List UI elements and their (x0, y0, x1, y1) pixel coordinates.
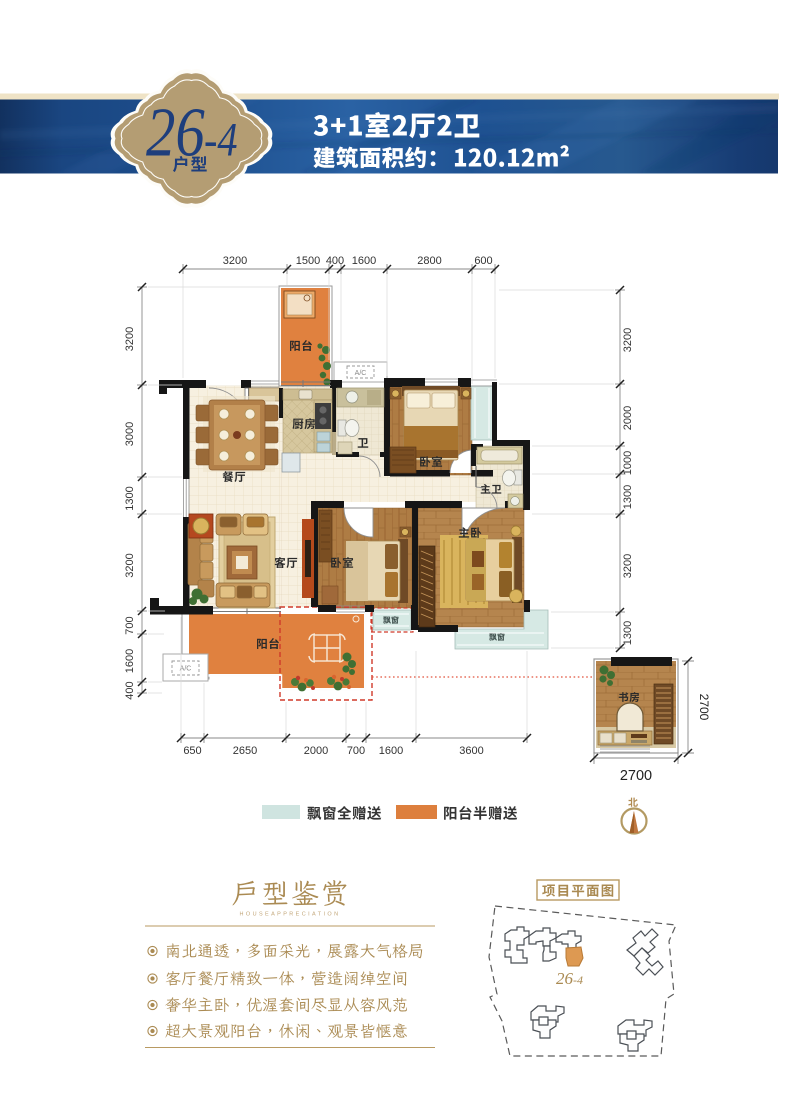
svg-text:1300: 1300 (622, 485, 634, 509)
svg-text:3200: 3200 (124, 327, 136, 351)
svg-text:3200: 3200 (622, 328, 634, 352)
svg-text:1600: 1600 (124, 649, 136, 673)
svg-text:1500: 1500 (296, 255, 320, 267)
svg-text:2700: 2700 (697, 694, 711, 721)
svg-text:A/C: A/C (355, 370, 367, 377)
svg-text:400: 400 (124, 681, 136, 699)
svg-text:1000: 1000 (622, 451, 634, 475)
svg-text:A/C: A/C (180, 666, 192, 673)
svg-text:3000: 3000 (124, 422, 136, 446)
svg-text:2000: 2000 (304, 745, 328, 757)
svg-text:HOUSEAPPRECIATION: HOUSEAPPRECIATION (240, 912, 341, 918)
svg-text:600: 600 (474, 255, 492, 267)
svg-text:700: 700 (347, 745, 365, 757)
svg-text:1300: 1300 (124, 486, 136, 510)
svg-text:26-4: 26-4 (556, 969, 583, 988)
svg-text:1300: 1300 (622, 621, 634, 645)
svg-text:650: 650 (183, 745, 201, 757)
svg-text:3200: 3200 (124, 553, 136, 577)
svg-text:1600: 1600 (379, 745, 403, 757)
svg-text:1600: 1600 (352, 255, 376, 267)
svg-text:2000: 2000 (622, 406, 634, 430)
svg-text:-4: -4 (204, 113, 238, 166)
svg-text:2800: 2800 (417, 255, 441, 267)
svg-text:2700: 2700 (620, 768, 652, 784)
svg-text:400: 400 (326, 255, 344, 267)
svg-text:3600: 3600 (459, 745, 483, 757)
svg-text:3200: 3200 (622, 554, 634, 578)
svg-text:2650: 2650 (233, 745, 257, 757)
svg-text:3200: 3200 (223, 255, 247, 267)
svg-text:700: 700 (124, 616, 136, 634)
